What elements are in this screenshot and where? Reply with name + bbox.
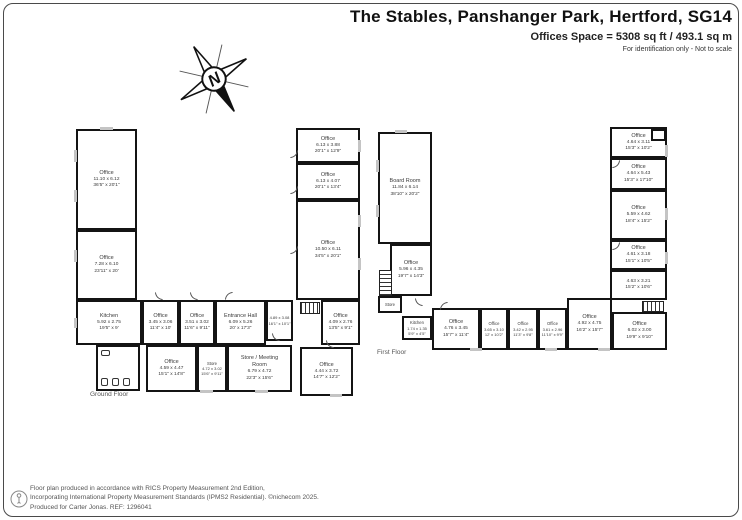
footer-line-3: Produced for Carter Jonas. REF: 1296041: [30, 503, 319, 512]
wc-fixture: [123, 378, 130, 386]
ff-office-5: Office3.61 x 2.9611'10" x 9'9": [538, 308, 567, 350]
ground-floor-label: Ground Floor: [90, 391, 128, 398]
gf-office-5: Office4.09 x 2.7613'5" x 9'1": [321, 300, 360, 345]
header: The Stables, Panshanger Park, Hertford, …: [350, 7, 732, 53]
room-name: Office: [93, 170, 119, 177]
ff-stairs-left: [379, 270, 392, 296]
gf-office-9: Office6.13 x 4.0720'1" x 13'4": [296, 163, 360, 200]
ff-office-6: Office4.92 x 4.7516'2" x 15'7": [567, 298, 612, 350]
disclaimer-note: For identification only - Not to scale: [350, 46, 732, 53]
window-segment: [598, 348, 610, 351]
ff-office-1: Office5.96 x 4.3519'7" x 14'3": [390, 244, 432, 296]
wc-fixture: [101, 378, 108, 386]
gf-office-6: Office4.59 x 4.4715'1" x 14'8": [146, 345, 197, 392]
window-segment: [330, 394, 342, 397]
window-segment: [665, 208, 668, 220]
window-segment: [665, 145, 668, 157]
ff-stairs-right: [642, 301, 664, 312]
nichecom-logo-icon: [10, 488, 28, 510]
footer-attribution: Floor plan produced in accordance with R…: [30, 484, 319, 512]
window-segment: [376, 205, 379, 217]
window-segment: [200, 390, 213, 393]
window-segment: [74, 190, 77, 202]
gf-store: Store4.72 x 3.0215'6" x 9'11": [197, 345, 227, 392]
area-summary: Offices Space = 5308 sq ft / 493.1 sq m: [350, 31, 732, 43]
gf-stairs: [300, 302, 320, 314]
window-segment: [74, 318, 77, 328]
ff-kitchen: Kitchen1.74 x 1.355'9" x 4'5": [402, 316, 432, 340]
gf-office-2: Office7.28 x 6.1023'11" x 20': [76, 230, 137, 300]
ff-office-7: Office6.02 x 3.0019'9" x 9'10": [612, 312, 667, 350]
basin-fixture: [101, 350, 110, 356]
ff-store: Store: [378, 296, 402, 313]
window-segment: [358, 140, 361, 152]
page-title: The Stables, Panshanger Park, Hertford, …: [350, 7, 732, 27]
ff-closet: [651, 129, 666, 141]
gf-entrance-hall: Entrance Hall6.09 x 5.2620' x 17'3": [215, 300, 266, 345]
window-segment: [74, 250, 77, 262]
ff-office-10: Office5.59 x 4.6218'4" x 15'2": [610, 190, 667, 240]
ff-office-2: Office4.76 x 3.4515'7" x 11'4": [432, 308, 480, 350]
window-segment: [376, 160, 379, 172]
first-floor-label: First Floor: [377, 349, 406, 356]
wc-fixture: [112, 378, 119, 386]
window-segment: [74, 150, 77, 162]
ff-board-room: Board Room11.84 x 6.1438'10" x 20'2": [378, 132, 432, 244]
window-segment: [100, 127, 113, 130]
window-segment: [470, 348, 482, 351]
ff-room-12: 4.63 x 3.2115'2" x 10'6": [610, 270, 667, 300]
ff-office-3: Office3.65 x 3.1012' x 10'2": [480, 308, 508, 350]
gf-office-10: Office10.50 x 6.1134'5" x 20'1": [296, 200, 360, 300]
ff-office-4: Office3.42 x 2.9511'3" x 9'8": [508, 308, 538, 350]
window-segment: [255, 390, 268, 393]
gf-office-7: Office4.44 x 3.7214'7" x 12'2": [300, 347, 353, 396]
gf-office-4: Office3.51 x 3.0211'6" x 9'11": [179, 300, 215, 345]
window-segment: [358, 258, 361, 270]
gf-store-meeting-room: Store / Meeting Room6.79 x 4.7222'3" x 1…: [227, 345, 292, 392]
footer-line-1: Floor plan produced in accordance with R…: [30, 484, 319, 493]
gf-kitchen: Kitchen5.92 x 2.7519'5" x 9': [76, 300, 142, 345]
gf-office-8: Office6.13 x 3.8820'1" x 12'9": [296, 128, 360, 163]
window-segment: [665, 252, 668, 264]
footer-line-2: Incorporating International Property Mea…: [30, 493, 319, 502]
window-segment: [358, 215, 361, 227]
window-segment: [545, 348, 557, 351]
window-segment: [395, 130, 407, 133]
gf-office-3: Office3.45 x 3.0611'4" x 10': [142, 300, 179, 345]
compass-rose-icon: N: [172, 40, 256, 118]
gf-office-1: Office11.10 x 6.1236'5" x 20'1": [76, 129, 137, 230]
